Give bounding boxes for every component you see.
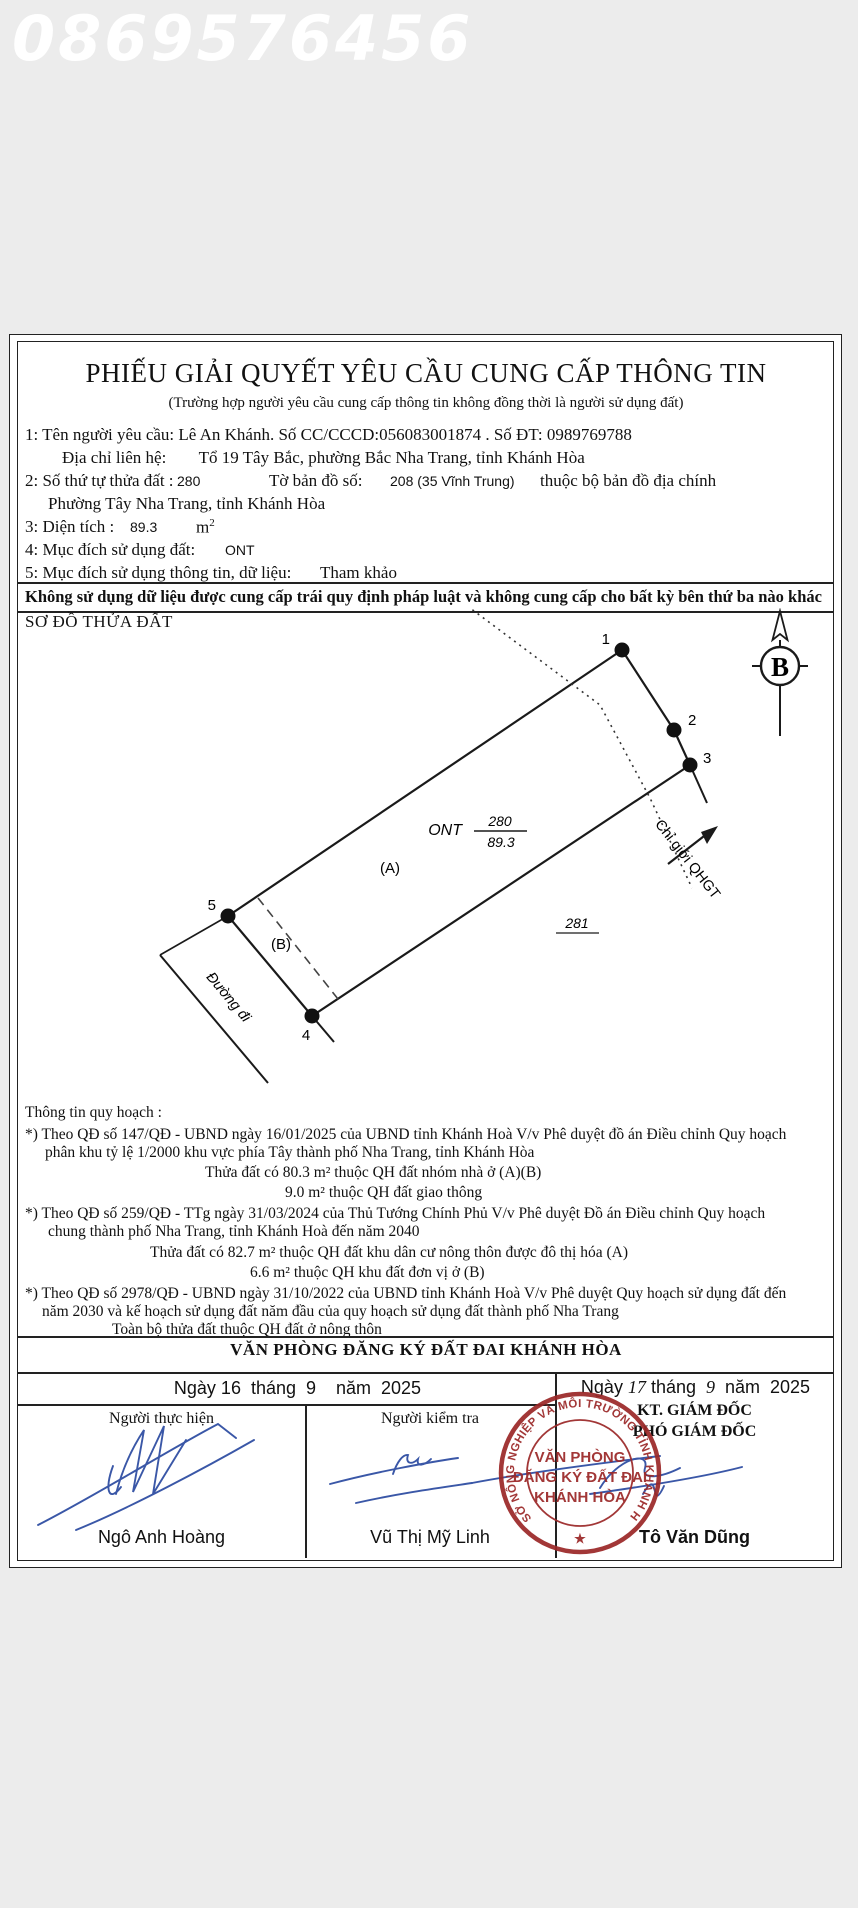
planning-line: Thửa đất có 82.7 m² thuộc QH đất khu dân… [150, 1244, 628, 1262]
planning-line: Thửa đất có 80.3 m² thuộc QH đất nhóm nh… [205, 1164, 541, 1182]
planning-line: *) Theo QĐ số 2978/QĐ - UBND ngày 31/10/… [25, 1285, 786, 1303]
planning-line: 9.0 m² thuộc QH đất giao thông [285, 1184, 482, 1202]
planning-line: năm 2030 và kế hoạch sử dụng đất năm đầu… [42, 1303, 619, 1321]
north-letter: B [771, 652, 789, 682]
vertex-label-2: 2 [688, 712, 696, 729]
vertex-label-4: 4 [302, 1027, 310, 1044]
field-parcel-address: Phường Tây Nha Trang, tỉnh Khánh Hòa [48, 494, 325, 514]
office-stamp: SỞ NÔNG NGHIỆP VÀ MÔI TRƯỜNG TỈNH KHÁNH … [455, 1368, 705, 1580]
purpose-label: 5: Mục đích sử dụng thông tin, dữ liệu: [25, 563, 291, 583]
stamp-line-3: KHÁNH HÒA [534, 1488, 626, 1506]
watermark-phone: 0869576456 [12, 2, 473, 75]
purpose-value: Tham khảo [320, 563, 397, 583]
area-unit: m2 [196, 517, 215, 538]
svg-text:281: 281 [564, 915, 588, 931]
address-label: Địa chỉ liên hệ: [62, 448, 166, 467]
page-title: PHIẾU GIẢI QUYẾT YÊU CẦU CUNG CẤP THÔNG … [18, 358, 834, 389]
table-border [18, 1372, 834, 1374]
parcel-area-label: 89.3 [487, 834, 514, 850]
landuse-value: ONT [225, 542, 255, 558]
planning-line: 6.6 m² thuộc QH khu đất đơn vị ở (B) [250, 1264, 485, 1282]
divider [18, 582, 834, 584]
page: { "watermark": "0869576456", "doc": { "t… [0, 0, 858, 1908]
area-label: 3: Diện tích : [25, 517, 114, 537]
planning-line: *) Theo QĐ số 147/QĐ - UBND ngày 16/01/2… [25, 1126, 786, 1144]
zone-b-label: (B) [271, 936, 291, 953]
area-value: 89.3 [130, 519, 157, 535]
landuse-label: 4: Mục đích sử dụng đất: [25, 540, 195, 560]
field-address: Địa chỉ liên hệ: Tổ 19 Tây Bắc, phường B… [62, 448, 585, 468]
sheet-label: Tờ bản đồ số: [269, 471, 363, 491]
table-border [18, 1336, 834, 1338]
page-subtitle: (Trường hợp người yêu cầu cung cấp thông… [18, 395, 834, 412]
stamp-line-1: VĂN PHÒNG [535, 1448, 626, 1466]
stamp-star-icon: ★ [574, 1531, 586, 1546]
vertex-label-5: 5 [208, 897, 216, 914]
address-value: Tổ 19 Tây Bắc, phường Bắc Nha Trang, tỉn… [199, 448, 585, 467]
zone-a-label: (A) [380, 860, 400, 877]
field-requester: 1: Tên người yêu cầu: Lê An Khánh. Số CC… [25, 425, 632, 445]
signatures [18, 1392, 834, 1560]
sheet-number: 208 (35 Vĩnh Trung) [390, 473, 515, 489]
parcel-label: 2: Số thứ tự thửa đất : [25, 471, 174, 491]
office-name: VĂN PHÒNG ĐĂNG KÝ ĐẤT ĐAI KHÁNH HÒA [18, 1340, 834, 1360]
parcel-sketch: 1 2 3 4 5 ONT 280 89.3 (A) (B) 281 Chỉ g… [18, 608, 834, 1102]
parcel-number: 280 [177, 473, 200, 489]
planning-line: *) Theo QĐ số 259/QĐ - TTg ngày 31/03/20… [25, 1205, 765, 1223]
neighbor-parcel-label: 281 [556, 915, 599, 933]
planning-line: chung thành phố Nha Trang, tỉnh Khánh Ho… [48, 1223, 420, 1241]
executor-signature [38, 1424, 254, 1530]
sheet-suffix: thuộc bộ bản đồ địa chính [540, 471, 716, 491]
north-arrow: B [752, 611, 808, 736]
vertex-label-1: 1 [602, 631, 610, 648]
planning-heading: Thông tin quy hoạch : [25, 1104, 162, 1122]
vertex-label-3: 3 [703, 750, 711, 767]
parcel-landuse-code: ONT [428, 822, 463, 839]
disclaimer: Không sử dụng dữ liệu được cung cấp trái… [25, 587, 833, 607]
road-label: Đường đi [203, 969, 254, 1026]
planning-line: phân khu tỷ lệ 1/2000 khu vực phía Tây t… [45, 1144, 534, 1162]
parcel-number-label: 280 [487, 813, 512, 829]
stamp-line-2: ĐĂNG KÝ ĐẤT ĐAI [513, 1468, 647, 1486]
